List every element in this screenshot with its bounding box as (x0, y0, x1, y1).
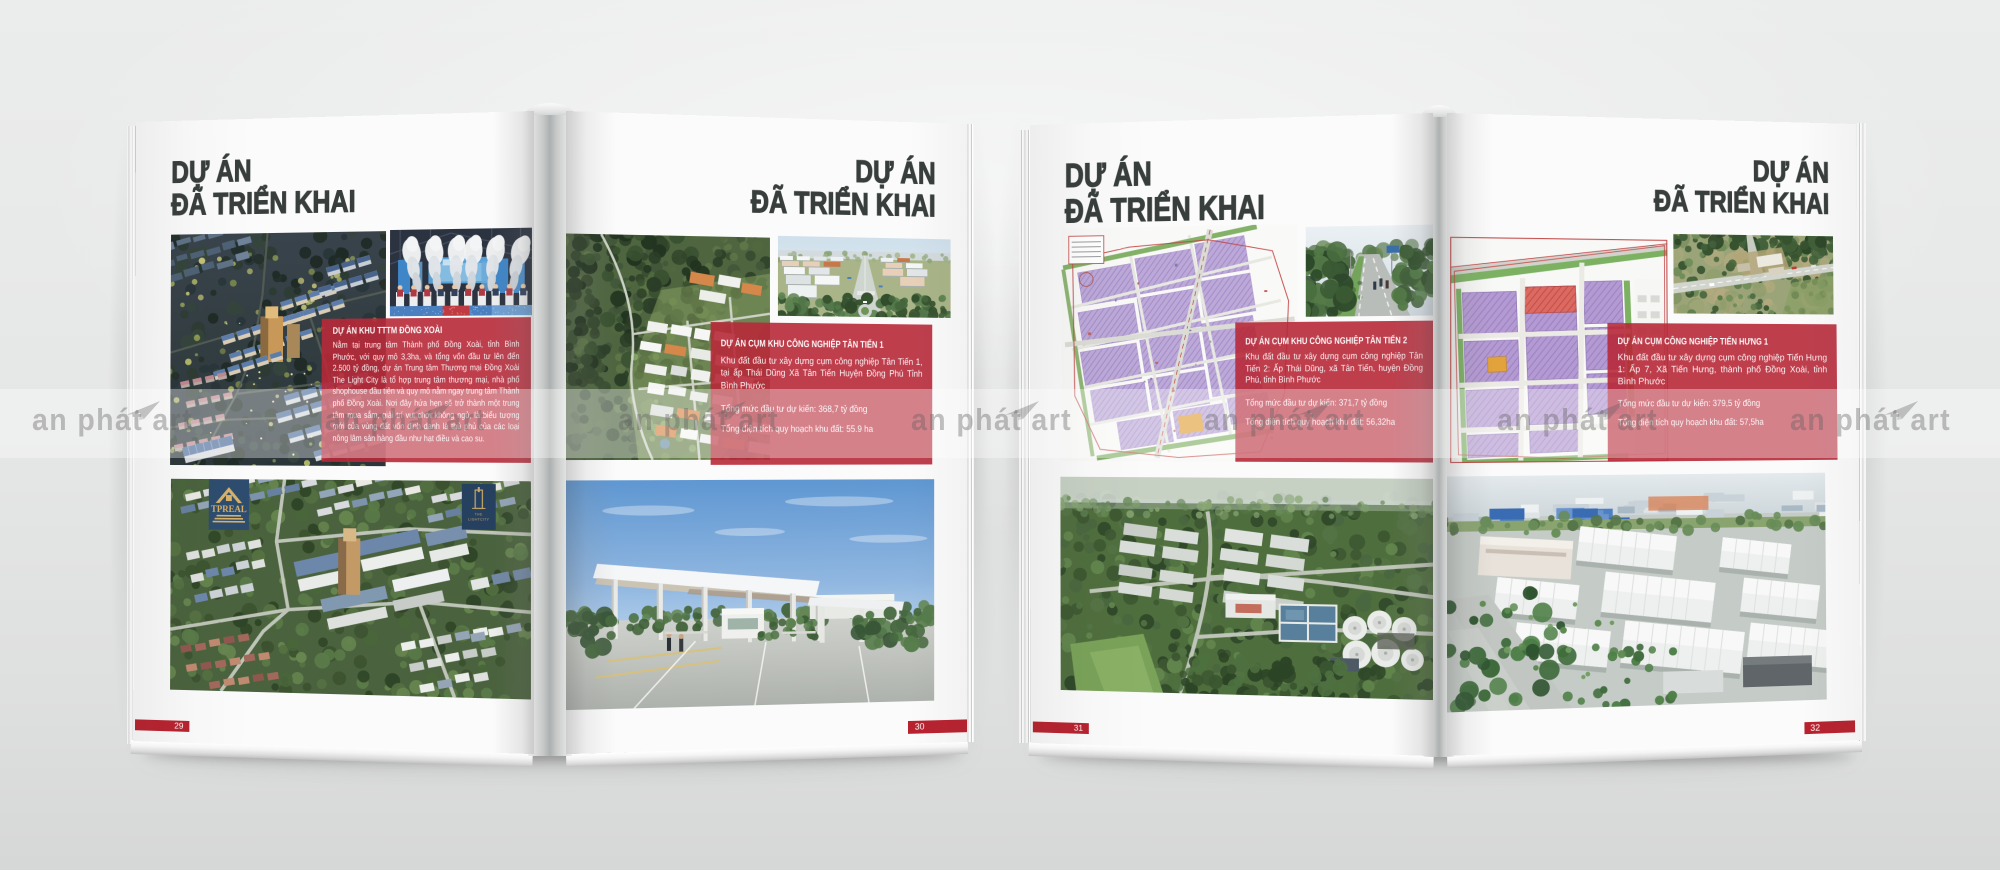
svg-text:THE: THE (475, 512, 483, 516)
svg-text:LIGHTCITY: LIGHTCITY (468, 517, 490, 521)
